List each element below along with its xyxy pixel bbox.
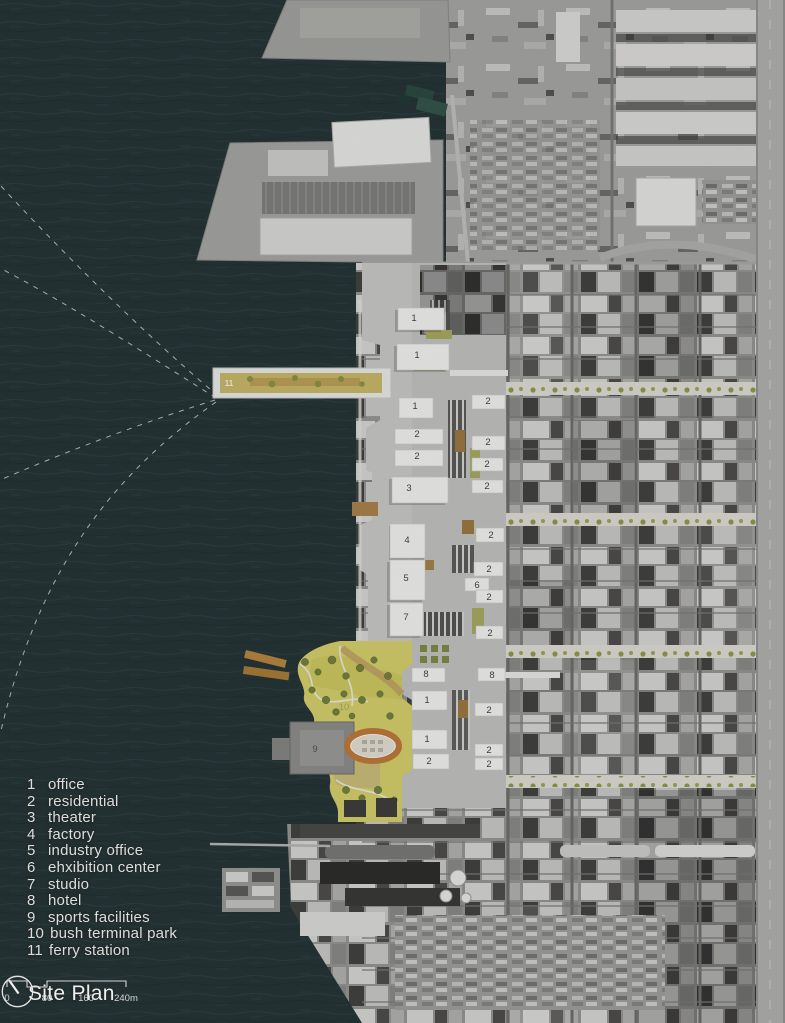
svg-text:2: 2 xyxy=(486,592,491,603)
svg-text:7: 7 xyxy=(403,612,408,623)
legend-item: 6ehxibition center xyxy=(27,860,177,877)
svg-text:4: 4 xyxy=(404,535,409,546)
legend-item: 8hotel xyxy=(27,893,177,910)
svg-text:1: 1 xyxy=(424,695,429,706)
legend: 1office 2residential 3theater 4factory 5… xyxy=(27,777,177,960)
legend-item: 3theater xyxy=(27,810,177,827)
svg-text:2: 2 xyxy=(426,756,431,767)
svg-text:2: 2 xyxy=(484,459,489,470)
legend-item: 5industry office xyxy=(27,843,177,860)
legend-item: 7studio xyxy=(27,877,177,894)
legend-item: 9sports facilities xyxy=(27,910,177,927)
svg-text:1: 1 xyxy=(411,313,416,324)
scale-bar: 0 80 160 240m xyxy=(0,974,150,1008)
svg-text:2: 2 xyxy=(488,530,493,541)
site-plan-page: 1 1 1 2 2 3 4 5 7 8 1 1 2 2 2 2 2 2 2 6 … xyxy=(0,0,785,1023)
svg-text:5: 5 xyxy=(403,573,408,584)
legend-item: 4factory xyxy=(27,827,177,844)
legend-item: 1office xyxy=(27,777,177,794)
svg-text:8: 8 xyxy=(489,670,494,681)
svg-text:1: 1 xyxy=(414,350,419,361)
title-block: Site Plan 0 80 160 240m xyxy=(0,974,300,1018)
svg-text:2: 2 xyxy=(486,564,491,575)
svg-text:2: 2 xyxy=(487,628,492,639)
scale-label: 160 xyxy=(78,993,94,1004)
legend-item: 10bush terminal park xyxy=(27,926,177,943)
svg-text:2: 2 xyxy=(414,451,419,462)
svg-text:1: 1 xyxy=(424,734,429,745)
scale-label: 240m xyxy=(114,993,138,1004)
scale-label: 0 xyxy=(4,993,9,1004)
svg-text:1: 1 xyxy=(412,401,417,412)
svg-text:2: 2 xyxy=(486,705,491,716)
svg-text:11: 11 xyxy=(225,378,234,388)
svg-text:2: 2 xyxy=(486,759,491,770)
legend-item: 11ferry station xyxy=(27,943,177,960)
svg-text:10: 10 xyxy=(339,702,350,713)
legend-item: 2residential xyxy=(27,794,177,811)
svg-text:2: 2 xyxy=(485,396,490,407)
svg-text:9: 9 xyxy=(312,744,317,755)
svg-text:3: 3 xyxy=(406,483,411,494)
svg-text:2: 2 xyxy=(414,429,419,440)
svg-text:2: 2 xyxy=(486,745,491,756)
svg-text:2: 2 xyxy=(484,481,489,492)
svg-text:6: 6 xyxy=(474,580,479,591)
svg-text:2: 2 xyxy=(485,437,490,448)
scale-label: 80 xyxy=(42,993,53,1004)
svg-text:8: 8 xyxy=(423,669,428,680)
